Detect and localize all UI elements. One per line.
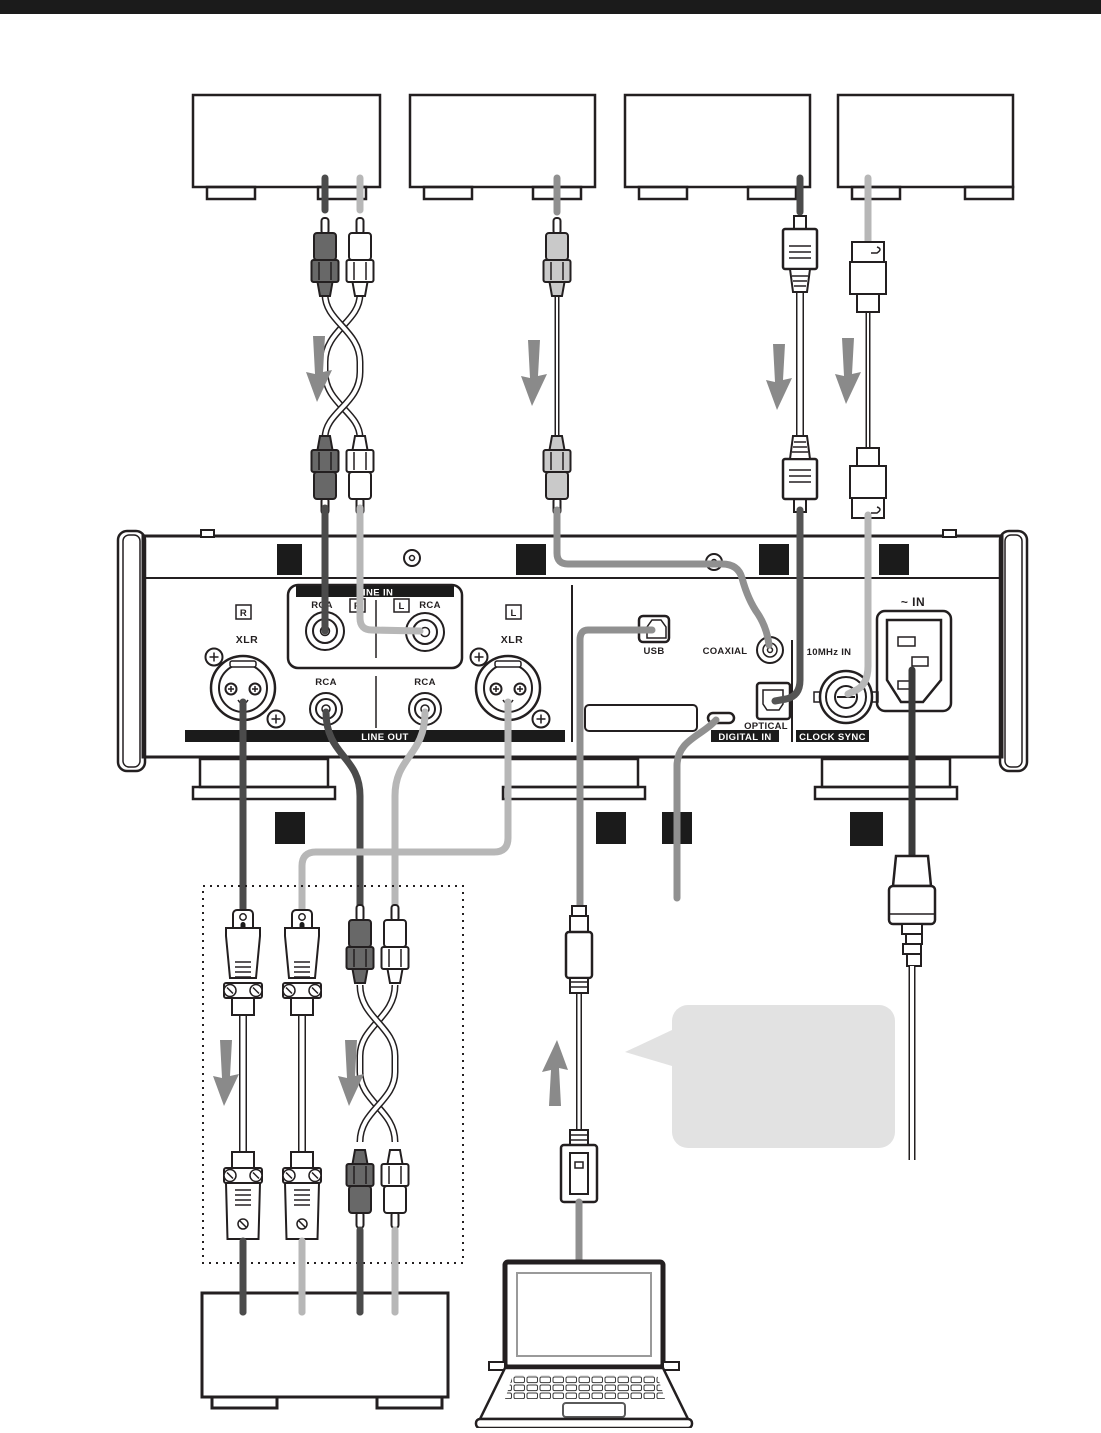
usb-b-plug: [566, 906, 592, 993]
rca-plug-white-top: [347, 218, 374, 296]
line-out-rca-right-label: RCA: [414, 677, 435, 688]
laptop-keyboard: [505, 1375, 665, 1399]
insert-arrow-5: [213, 1040, 239, 1106]
digital-in-section: USB COAXIAL OPTICAL DIGITAL IN: [585, 616, 790, 743]
insert-arrow-up: [542, 1040, 568, 1106]
line-in-l-cable: [360, 508, 420, 631]
xlr-plug-1-bottom: [224, 1152, 262, 1239]
rca-out-plug-red-top: [347, 905, 374, 983]
amplifier-box: [202, 1293, 448, 1408]
optical-plug-top: [783, 216, 817, 292]
line-out-r-badge: R: [240, 608, 247, 619]
line-out-rca-left-label: RCA: [315, 677, 336, 688]
xlr-plug-1-top: [224, 910, 262, 1015]
blank-plate: [585, 705, 697, 731]
step-marker-2: [596, 812, 626, 844]
laptop: [476, 1262, 692, 1428]
insert-arrow-2: [521, 340, 547, 406]
vent-3: [759, 544, 789, 575]
usb-a-plug: [561, 1130, 597, 1202]
insert-arrow-3: [766, 344, 792, 410]
rca-out-plug-red-bottom: [347, 1150, 374, 1228]
rca-plug-red-top: [312, 218, 339, 296]
ac-plug-body: [889, 886, 935, 924]
usb-cable-run: [580, 630, 652, 905]
analog-out-cable-group: [203, 886, 463, 1263]
panel-feet: [193, 759, 957, 799]
step-marker-4: [850, 812, 883, 846]
vent-4: [879, 544, 909, 575]
source-device-2: [410, 95, 595, 199]
xlr-r-label: XLR: [236, 634, 259, 646]
optical-cable-run: [775, 510, 800, 701]
optical-plug-bottom: [783, 436, 817, 512]
bnc-connector-top: [850, 242, 886, 312]
ac-in-label: ~ IN: [901, 595, 925, 609]
panel-screw-1: [404, 550, 420, 566]
line-in-l-badge: L: [398, 601, 404, 612]
clock-sync-label: CLOCK SYNC: [799, 732, 866, 743]
source-device-1: [193, 95, 380, 199]
laptop-base-bottom: [476, 1419, 692, 1428]
laptop-touchpad: [563, 1403, 625, 1417]
rack-handle-right: [1000, 531, 1027, 771]
10mhz-in-label: 10MHz IN: [807, 647, 852, 658]
usb-label: USB: [644, 646, 665, 657]
rca-plug-white-bottom: [347, 436, 374, 514]
speech-bubble: [625, 1005, 895, 1148]
coax-plug-bottom: [544, 436, 571, 514]
xlr-l-label: XLR: [501, 634, 524, 646]
ac-strain-relief: [902, 924, 922, 966]
digital-in-label: DIGITAL IN: [718, 732, 771, 743]
line-out-l-badge: L: [510, 608, 516, 619]
line-in-rca-l-label: RCA: [419, 600, 440, 611]
step-marker-1: [275, 812, 305, 844]
optical-cable: [783, 216, 817, 512]
rca-out-plug-white-bottom: [382, 1150, 409, 1228]
xlr-plug-2-bottom: [283, 1152, 321, 1239]
usb-cable-assembly: [542, 906, 597, 1264]
source-device-3: [625, 95, 810, 199]
coaxial-rca-cable: [544, 218, 571, 514]
rca-plug-red-bottom: [312, 436, 339, 514]
vent-2: [516, 544, 546, 575]
line-in-section: LINE IN RCA R L RCA: [288, 585, 462, 668]
coax-plug-top: [544, 218, 571, 296]
page-header-bar: [0, 0, 1101, 14]
laptop-screen: [517, 1273, 651, 1356]
panel-cables: [243, 508, 912, 911]
ac-plug-tip: [893, 856, 931, 886]
source-device-4: [838, 95, 1013, 199]
manual-page: LINE IN RCA R L RCA R XLR: [0, 0, 1101, 1428]
rack-handle-left: [118, 531, 145, 771]
power-cord-assembly: [889, 856, 935, 1160]
amp-cable-stubs: [243, 1230, 395, 1312]
rca-out-plug-white-top: [382, 905, 409, 983]
service-cable-run: [677, 720, 716, 898]
vent-1: [277, 544, 302, 575]
bnc-cable-run: [848, 515, 868, 694]
xlr-plug-2-top: [283, 910, 321, 1015]
coaxial-label: COAXIAL: [703, 646, 748, 657]
connection-diagram: LINE IN RCA R L RCA R XLR: [0, 0, 1101, 1428]
bnc-connector-bottom: [850, 448, 886, 518]
line-out-label: LINE OUT: [361, 732, 409, 743]
insert-arrow-4: [835, 338, 861, 404]
